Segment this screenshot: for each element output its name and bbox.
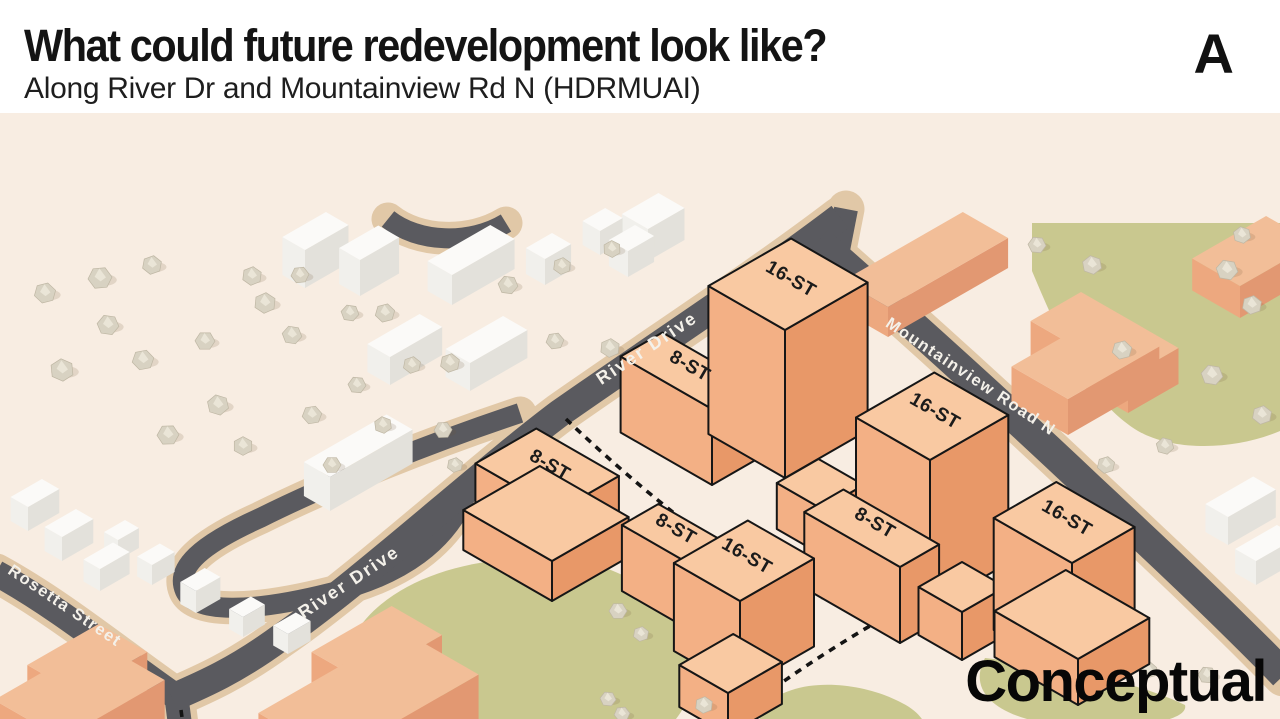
conceptual-watermark: Conceptual (965, 653, 1266, 711)
slide-header: What could future redevelopment look lik… (0, 0, 1280, 113)
site-map-container: 8-ST16-ST8-ST16-ST8-ST16-ST8-ST16-STRive… (0, 113, 1280, 719)
page-title: What could future redevelopment look lik… (24, 20, 826, 72)
site-map: 8-ST16-ST8-ST16-ST8-ST16-ST8-ST16-STRive… (0, 113, 1280, 719)
page-subtitle: Along River Dr and Mountainview Rd N (HD… (24, 72, 700, 106)
slide: What could future redevelopment look lik… (0, 0, 1280, 719)
scheme-letter: A (1194, 26, 1234, 82)
